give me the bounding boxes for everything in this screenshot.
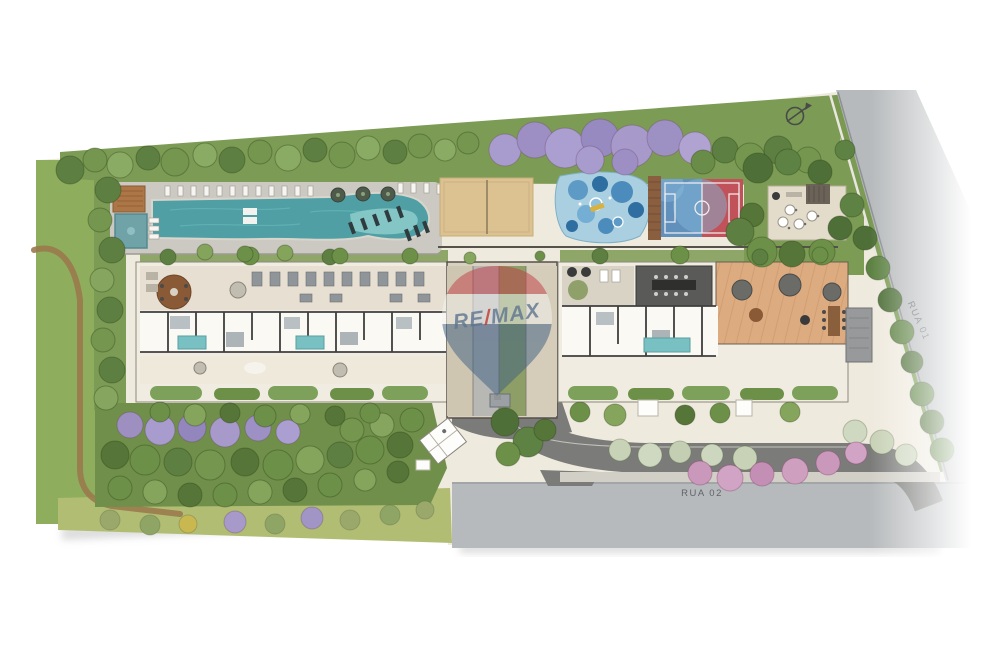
parking-ramp (846, 308, 872, 362)
fire-pit (800, 315, 810, 325)
site-plan-page: RUA 01 RUA 02 (0, 0, 1000, 667)
plunge-pool (178, 336, 206, 349)
internal-pool (644, 338, 690, 352)
street-label-rua02: RUA 02 (681, 488, 723, 499)
deck-strip (648, 176, 661, 240)
left-lawn (36, 160, 98, 524)
grill (772, 192, 780, 200)
balloon-basket (494, 394, 501, 400)
yellow-flowering-tree (179, 515, 197, 533)
canopy (736, 400, 752, 416)
kids-room-rug (568, 280, 588, 300)
site-plan-canvas: RUA 01 RUA 02 (0, 0, 1000, 667)
pergola (806, 184, 830, 204)
right-building-wing (558, 262, 872, 416)
planting-pockets (568, 386, 838, 400)
water-playground (555, 172, 651, 243)
left-building-wing (136, 262, 450, 402)
pool-planters (331, 187, 395, 202)
gate-pad (416, 460, 430, 470)
planting-pockets (150, 386, 428, 400)
dining-table (828, 306, 840, 336)
plunge-pool (296, 336, 324, 349)
canopy (638, 400, 658, 416)
pool-complex (110, 182, 442, 254)
